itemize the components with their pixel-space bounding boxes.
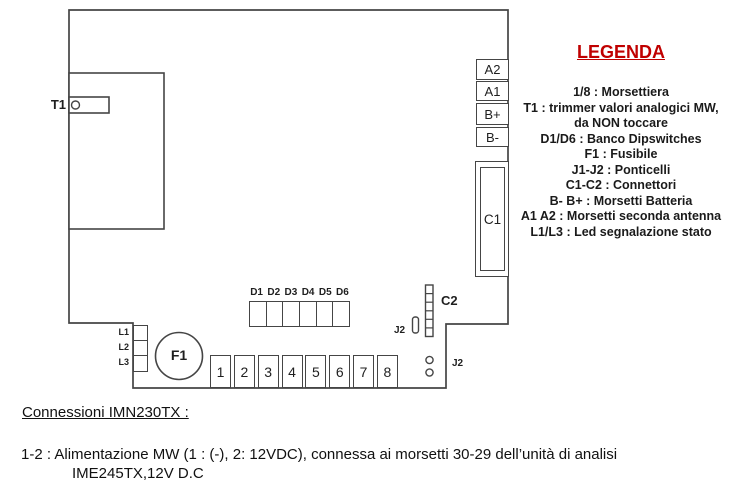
- terminal-7: 7: [353, 355, 374, 388]
- dip-switch: [333, 302, 349, 326]
- dip-switch: [250, 302, 267, 326]
- j2-jumper-pin: [413, 317, 419, 333]
- t1-hole: [72, 101, 80, 109]
- dip-label: D6: [334, 287, 351, 298]
- terminal-strip: 1 2 3 4 5 6 7 8: [210, 355, 398, 388]
- t1-label: T1: [44, 97, 66, 112]
- led-labels: L1 L2 L3: [108, 325, 129, 370]
- terminal-1: 1: [210, 355, 231, 388]
- legend: 1/8 : Morsettiera T1 : trimmer valori an…: [496, 85, 746, 240]
- led-label: L3: [108, 355, 129, 370]
- dipswitch-bank: [249, 301, 350, 327]
- legend-item: A1 A2 : Morsetti seconda antenna: [496, 209, 746, 225]
- terminal-2: 2: [234, 355, 255, 388]
- f1-label: F1: [161, 347, 197, 363]
- legend-title: LEGENDA: [496, 42, 746, 63]
- j2-bottom-label: J2: [452, 358, 463, 369]
- j2-pad-1: [426, 356, 433, 363]
- terminal-3: 3: [258, 355, 279, 388]
- legend-item: da NON toccare: [496, 116, 746, 132]
- terminal-5: 5: [305, 355, 326, 388]
- dip-switch: [317, 302, 334, 326]
- dip-label: D2: [265, 287, 282, 298]
- legend-item: F1 : Fusibile: [496, 147, 746, 163]
- connection-line-2: IME245TX,12V D.C: [72, 465, 204, 482]
- dip-label: D1: [248, 287, 265, 298]
- c2-label: C2: [441, 293, 458, 308]
- page: T1 A2 A1 B+ B- C1 C2 J2 J2 D1 D2 D3 D4 D…: [0, 0, 747, 490]
- legend-item: T1 : trimmer valori analogici MW,: [496, 101, 746, 117]
- j2-pad-2: [426, 369, 433, 376]
- led-l3: [133, 355, 148, 372]
- connections-heading: Connessioni IMN230TX :: [22, 404, 189, 421]
- dipswitch-labels: D1 D2 D3 D4 D5 D6: [248, 287, 351, 298]
- j2-top-label: J2: [394, 325, 405, 336]
- terminal-6: 6: [329, 355, 350, 388]
- connection-line-1: 1-2 : Alimentazione MW (1 : (-), 2: 12VD…: [21, 446, 617, 463]
- led-label: L2: [108, 340, 129, 355]
- terminal-8: 8: [377, 355, 398, 388]
- legend-item: J1-J2 : Ponticelli: [496, 163, 746, 179]
- legend-item: 1/8 : Morsettiera: [496, 85, 746, 101]
- terminal-4: 4: [282, 355, 303, 388]
- legend-item: L1/L3 : Led segnalazione stato: [496, 225, 746, 241]
- dip-switch: [267, 302, 284, 326]
- dip-switch: [283, 302, 300, 326]
- led-label: L1: [108, 325, 129, 340]
- legend-item: B- B+ : Morsetti Batteria: [496, 194, 746, 210]
- legend-item: D1/D6 : Banco Dipswitches: [496, 132, 746, 148]
- dip-label: D3: [282, 287, 299, 298]
- dip-label: D4: [300, 287, 317, 298]
- dip-switch: [300, 302, 317, 326]
- legend-item: C1-C2 : Connettori: [496, 178, 746, 194]
- dip-label: D5: [317, 287, 334, 298]
